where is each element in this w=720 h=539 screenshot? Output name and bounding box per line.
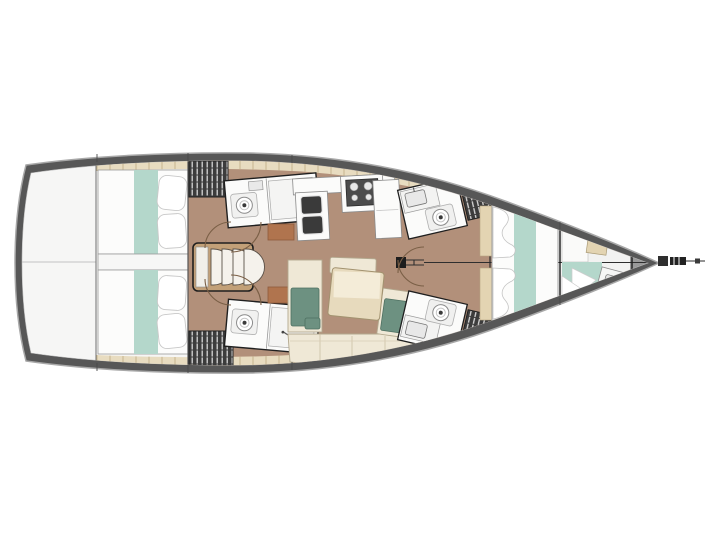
pillow (157, 275, 187, 311)
burner (350, 183, 358, 191)
galley-fridge (373, 179, 402, 238)
head-sink (248, 181, 263, 191)
wet-locker-port (189, 161, 228, 197)
stairs-landing (196, 247, 208, 287)
bowsprit (658, 256, 705, 266)
cushion-green-small (305, 318, 320, 329)
mast-step (396, 257, 406, 268)
galley-sink (302, 215, 324, 234)
engine-compartment (98, 254, 188, 270)
bow-fitting (658, 256, 668, 266)
stay-fitting (695, 259, 700, 264)
companionway-stairs (193, 243, 265, 291)
aft-cabin-port (98, 170, 188, 254)
boat-floor-plan-canvas (0, 0, 720, 539)
aft-berth-port-teal-runner (134, 170, 158, 254)
faucet-dot (618, 281, 621, 284)
burner (365, 194, 371, 200)
pillow (157, 213, 187, 249)
yacht-layout-diagram (0, 0, 720, 539)
anchor-roller (670, 257, 686, 265)
aft-cabin-starboard (98, 270, 188, 354)
salon-table (328, 267, 385, 320)
cabinet-port (268, 224, 294, 240)
pillow (156, 175, 187, 212)
interior-layout (21, 150, 652, 380)
aft-berth-starboard-teal-runner (134, 270, 158, 354)
owner-bed-teal-runner (514, 209, 536, 317)
pillow (156, 313, 187, 350)
owner-shelf-port (480, 206, 492, 256)
galley-sink (300, 195, 322, 214)
table-top (334, 271, 381, 299)
burner (364, 182, 372, 190)
burner (351, 195, 357, 201)
owner-shelf-starboard (480, 268, 492, 320)
